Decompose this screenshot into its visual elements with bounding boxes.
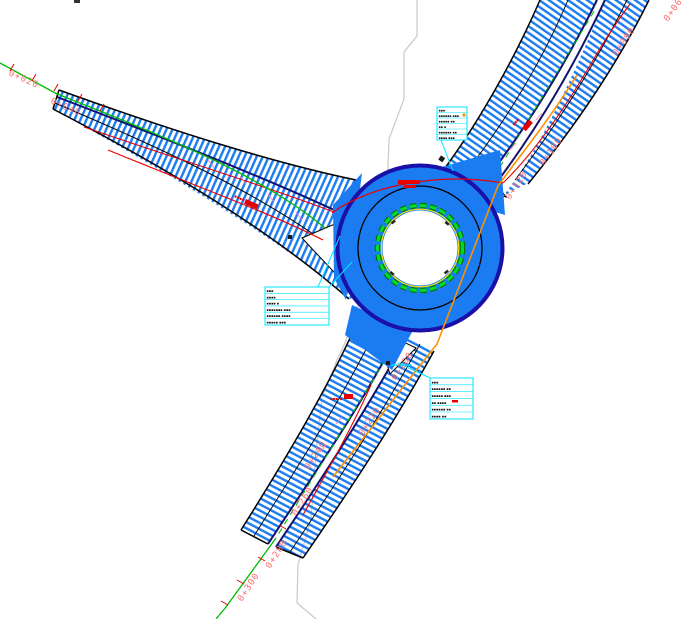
annotation-line: ▪▪▪▪▪▪ ▪▪▪ [439, 114, 459, 118]
annotation-line: ▪▪▪▪▪ ▪▪ [439, 120, 455, 124]
annotation-box-top: ▪▪▪ ▪▪▪▪▪▪ ▪▪▪ ▪▪▪▪▪ ▪▪ ▪▪ ▪ ▪▪▪▪▪▪ ▪▪ ▪… [437, 107, 467, 140]
red-mark-sw [344, 394, 353, 399]
annotation-line: ▪▪▪▪ ▪▪▪ [439, 136, 455, 140]
sign-symbol-icon [438, 155, 445, 162]
annotation-line: ▪▪▪ [267, 289, 274, 293]
station-label: 0+060 [662, 0, 685, 24]
annotation-line: ▪▪ ▪▪▪▪ [432, 401, 447, 405]
annotation-line: ▪▪▪▪▪▪ ▪▪ [432, 387, 451, 391]
edge-mark [74, 0, 80, 3]
orange-dot-icon [463, 114, 466, 117]
station-label: 0+120 [504, 169, 530, 201]
annotation-line: ▪▪▪▪▪ ▪▪▪ [432, 394, 451, 398]
red-mark-circle-top [398, 180, 420, 184]
annotation-line: ▪▪▪▪ ▪▪ [432, 414, 447, 418]
station-label: 0+020 [7, 69, 40, 91]
sw-alignment-line [216, 538, 276, 619]
sign-symbol-icon [386, 361, 390, 365]
annotation-box-bottom: ▪▪▪ ▪▪▪▪▪▪ ▪▪ ▪▪▪▪▪ ▪▪▪ ▪▪ ▪▪▪▪ ▪▪▪▪▪▪ ▪… [430, 378, 473, 419]
cad-canvas: 0+020 0+040 0+060 0+080 0+100 0+120 0+20… [0, 0, 685, 619]
red-mark-circle-top-2 [404, 185, 416, 188]
annotation-line: ▪▪▪▪▪▪ ▪▪▪▪ [267, 314, 291, 318]
tick [237, 580, 244, 584]
annotation-line: ▪▪▪▪▪ ▪▪▪ [267, 321, 286, 325]
annotation-line: ▪▪ ▪ [439, 125, 447, 129]
annotation-line: ▪▪▪▪▪▪ ▪▪ [439, 131, 457, 135]
west-arm [53, 90, 356, 300]
annotation-box-left: ▪▪▪ ▪▪▪▪ ▪▪▪▪ ▪ ▪▪▪▪▪▪▪ ▪▪▪ ▪▪▪▪▪▪ ▪▪▪▪ … [265, 287, 329, 325]
tick [54, 84, 58, 91]
annotation-line: ▪▪▪▪ ▪ [267, 302, 280, 306]
annotation-line: ▪▪▪ [432, 380, 439, 384]
roundabout-plan-drawing: 0+020 0+040 0+060 0+080 0+100 0+120 0+20… [0, 0, 685, 619]
annotation-line: ▪▪▪▪▪▪▪ ▪▪▪ [267, 308, 291, 312]
annotation-line: ▪▪▪▪▪▪ ▪▪ [432, 408, 451, 412]
sign-symbol-icon [288, 235, 292, 239]
tick [221, 601, 228, 605]
red-dot-icon [452, 400, 458, 403]
red-note-sw: ▪▪▪ ▪ [330, 396, 342, 401]
cyan-note: ▪▪▪ ▪▪▪▪▪ [391, 363, 412, 367]
annotation-line: ▪▪▪ [439, 109, 445, 113]
annotation-line: ▪▪▪▪ [267, 295, 276, 299]
